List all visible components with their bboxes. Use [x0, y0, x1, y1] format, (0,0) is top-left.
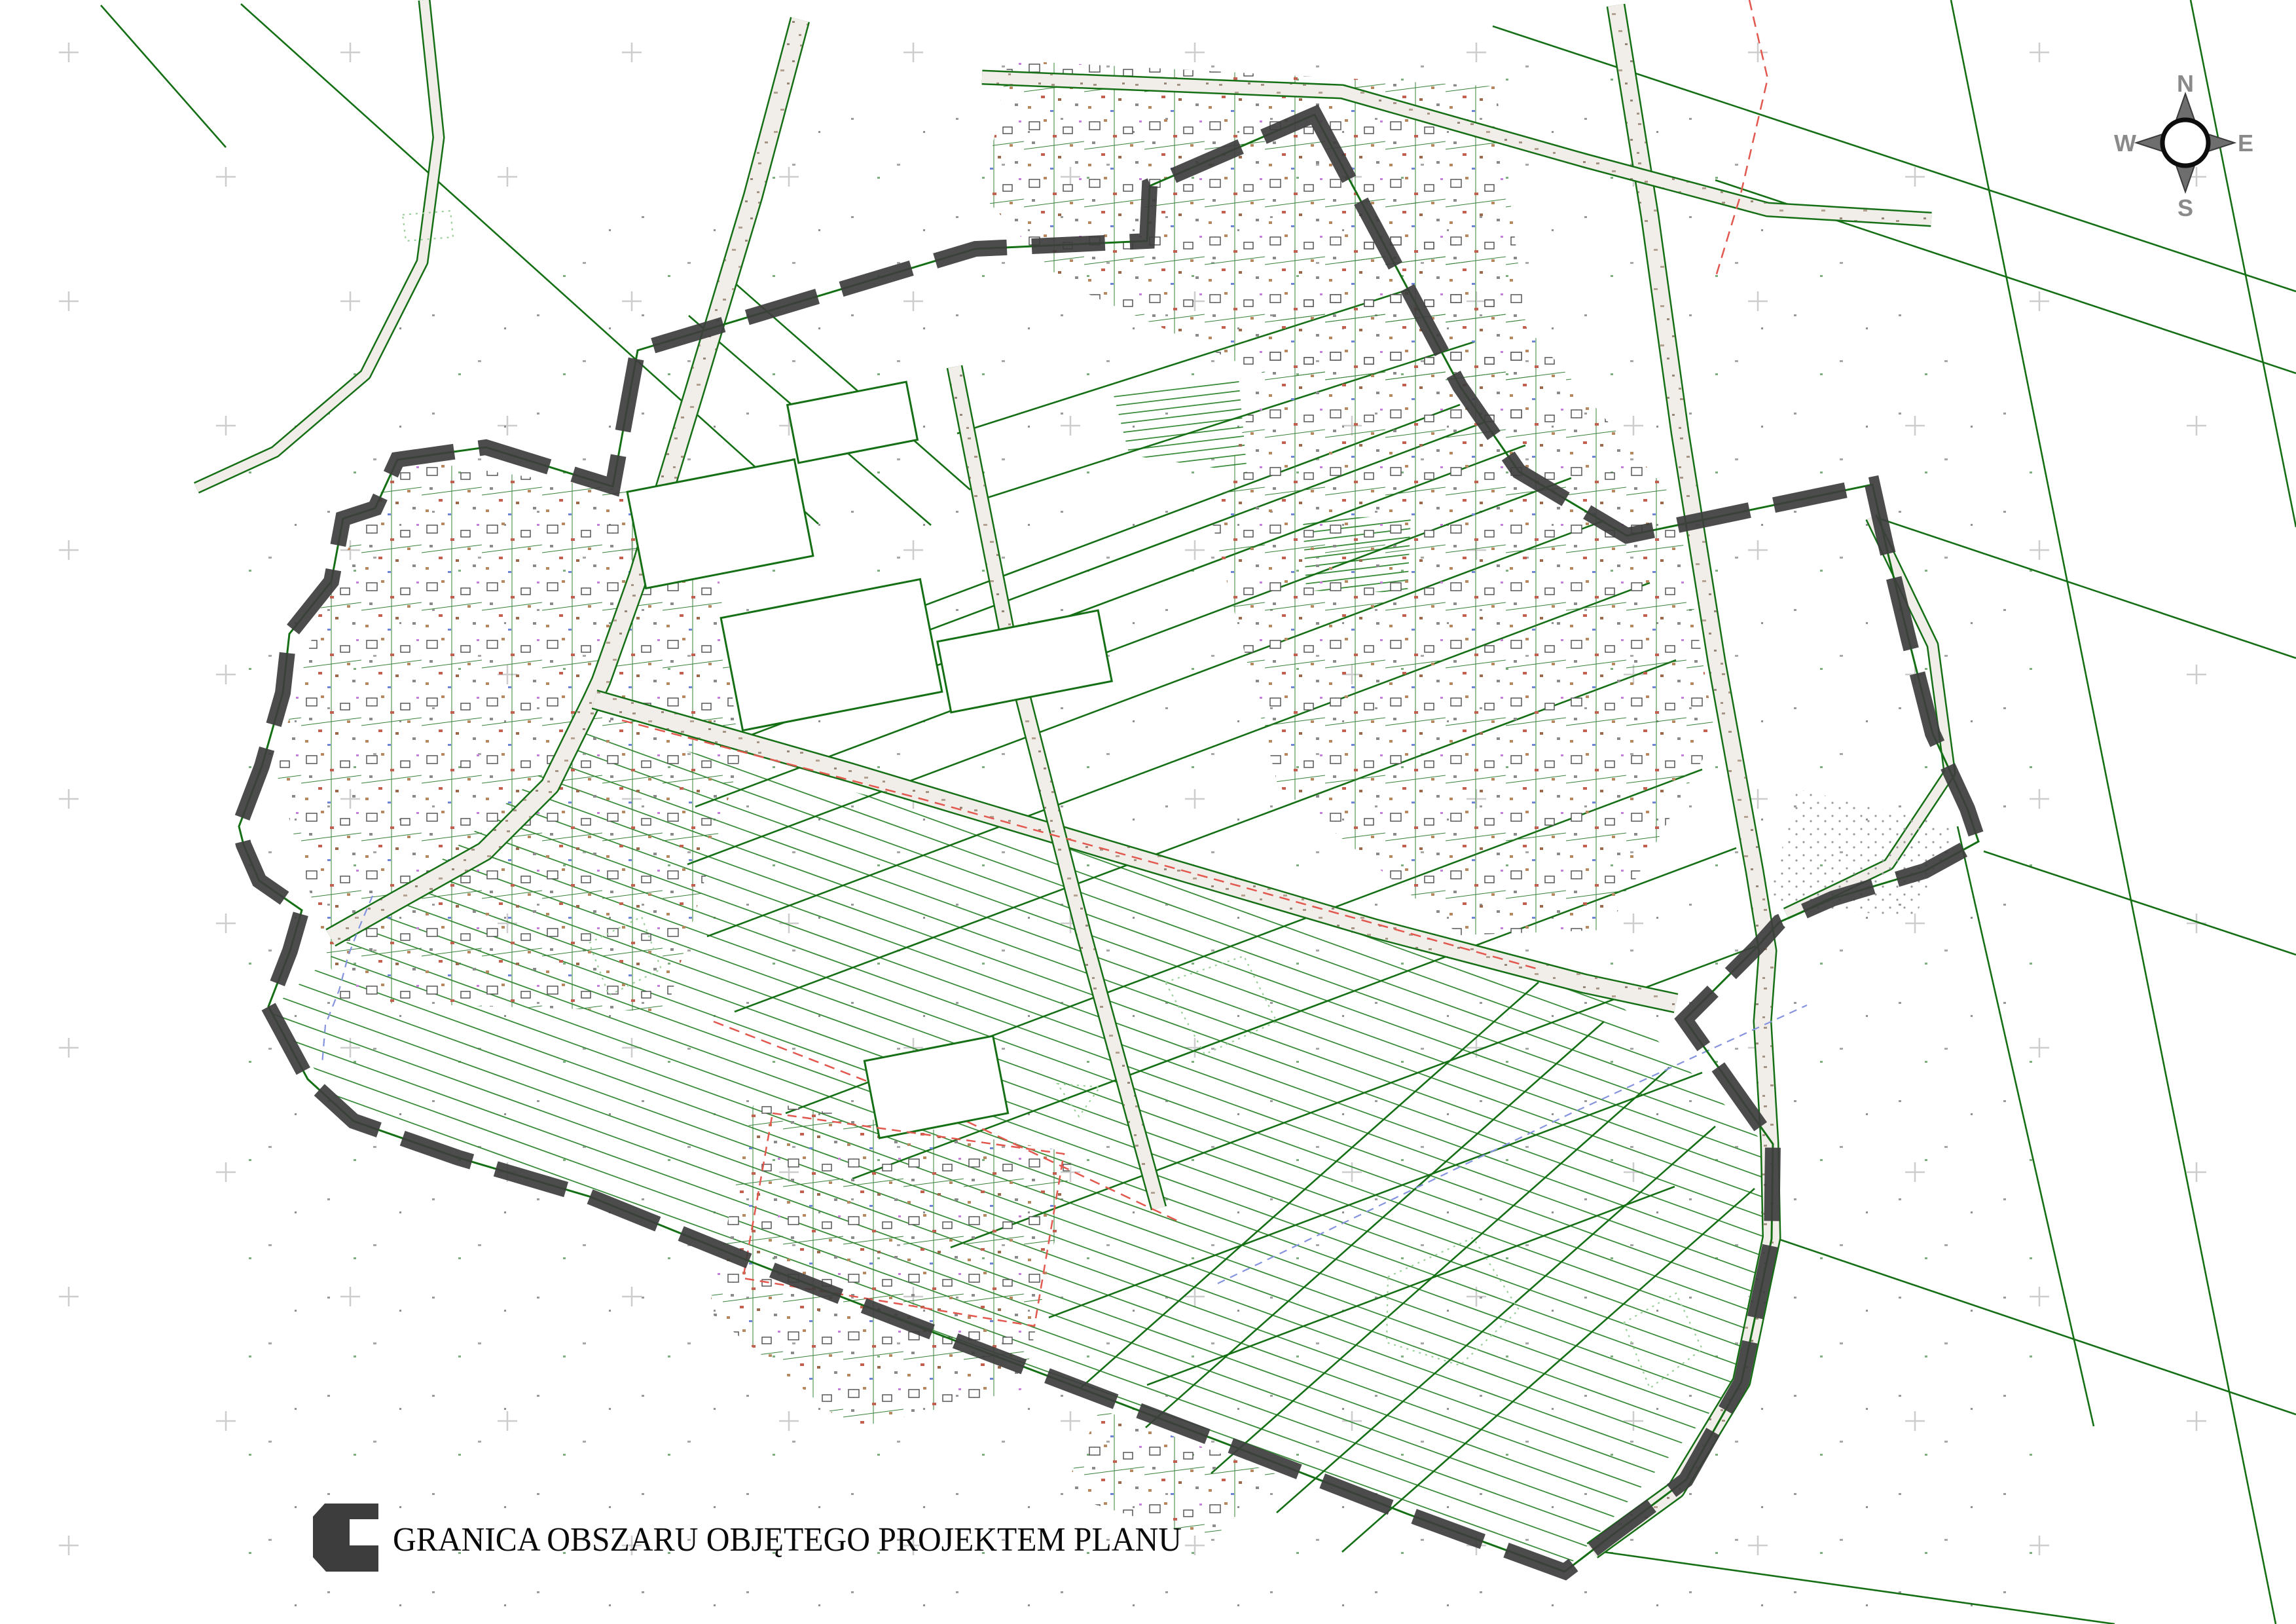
compass-label-e: E	[2238, 130, 2253, 157]
legend-boundary-swatch-icon	[313, 1504, 380, 1572]
legend-label: GRANICA OBSZARU OBJĘTEGO PROJEKTEM PLANU	[393, 1521, 1182, 1559]
cadastral-map: N E S W GRANICA OBSZARU OBJĘTEGO PROJEKT…	[0, 0, 2296, 1624]
compass-label-w: W	[2114, 130, 2136, 157]
plan-map-page: N E S W GRANICA OBSZARU OBJĘTEGO PROJEKT…	[0, 0, 2296, 1624]
compass-ring	[2162, 120, 2208, 166]
compass-label-n: N	[2177, 70, 2194, 97]
compass-label-s: S	[2178, 194, 2193, 221]
map-layers	[0, 0, 2296, 1624]
